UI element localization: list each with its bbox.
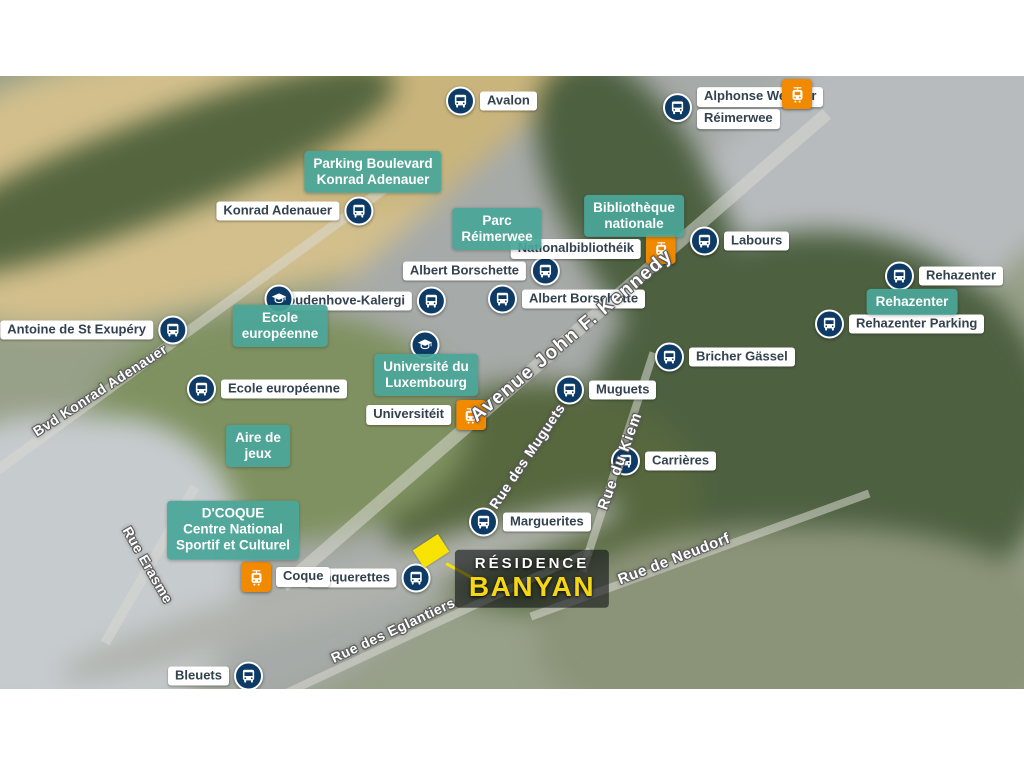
poi-label-line: Ecole [242,310,319,326]
bus-stop-muguets[interactable]: Muguets [555,376,656,405]
bus-stop-label: Rehazenter [919,266,1003,286]
bus-icon [344,197,373,226]
bus-stop-ecole-europeenne[interactable]: Ecole européenne [187,375,347,404]
bus-icon [234,662,263,690]
bus-stop-label: Antoine de St Exupéry [0,320,153,340]
poi-label-d-coque: D'COQUECentre NationalSportif et Culture… [167,501,299,560]
street-label-rue-des-eglantiers: Rue des Eglantiers [328,594,457,666]
street-label-bvd-konrad-adenauer: Bvd Konrad Adenauer [30,341,170,440]
map-canvas[interactable]: AvalonAlphonse WeickerRéimerweeKonrad Ad… [0,76,1024,689]
bus-stop-label: Marguerites [503,512,591,532]
bus-stop-label: Réimerwee [697,109,780,129]
poi-label-line: Réimerwee [461,229,532,245]
poi-label-line: Centre National [176,522,290,538]
poi-label-line: Bibliothèque [593,200,675,216]
bottom-margin [0,689,1024,768]
bus-stop-avalon[interactable]: Avalon [446,87,537,116]
poi-label-line: Université du [383,359,469,375]
bus-icon [655,343,684,372]
bus-icon [663,94,692,123]
bus-stop-label: Rehazenter Parking [849,314,984,334]
bus-stop-label: Konrad Adenauer [216,201,339,221]
bus-stop-label: Carrières [645,451,716,471]
tram-stop-stop[interactable] [782,79,812,109]
bus-stop-label: Bricher Gässel [689,347,795,367]
poi-label-line: Konrad Adenauer [313,172,432,188]
poi-label-universite-du: Université duLuxembourg [374,354,478,396]
bus-icon [402,564,431,593]
bus-stop-label: Muguets [589,380,656,400]
tram-icon [782,79,812,109]
bus-icon [690,227,719,256]
bus-stop-rehazenter[interactable]: Rehazenter [885,262,1003,291]
bus-stop-bricher-gassel[interactable]: Bricher Gässel [655,343,795,372]
bus-stop-label: Labours [724,231,789,251]
property-name-line2: BANYAN [469,572,595,601]
poi-label-bibliotheque: Bibliothèquenationale [584,195,684,237]
poi-label-line: Parking Boulevard [313,156,432,172]
property-name-label: RÉSIDENCEBANYAN [455,550,609,608]
poi-label-parking-boulevard: Parking BoulevardKonrad Adenauer [304,151,441,193]
listing-map-image: AvalonAlphonse WeickerRéimerweeKonrad Ad… [0,0,1024,768]
street-label-rue-de-neudorf: Rue de Neudorf [616,530,733,588]
poi-label-aire-de: Aire dejeux [226,425,290,467]
bus-stop-marguerites[interactable]: Marguerites [469,508,591,537]
tram-stop-label: Coque [276,567,330,587]
bus-icon [417,287,446,316]
tram-stop-label: Universitéit [366,405,451,425]
street-label-rue-des-muguets: Rue des Muguets [486,400,568,511]
property-name-line1: RÉSIDENCE [469,555,595,572]
bus-icon [815,310,844,339]
bus-stop-labours[interactable]: Labours [690,227,789,256]
top-margin [0,0,1024,76]
poi-label-line: Sportif et Culturel [176,538,290,554]
poi-label-rehazenter: Rehazenter [867,289,958,315]
tram-icon [241,562,271,592]
poi-label-line: Aire de [235,430,281,446]
bus-icon [187,375,216,404]
bus-icon [885,262,914,291]
bus-stop-label: Albert Borschette [403,261,526,281]
poi-label-line: jeux [235,446,281,462]
poi-label-ecole: Ecoleeuropéenne [233,305,328,347]
poi-label-parc: ParcRéimerwee [452,208,541,250]
bus-stop-antoine-de-st-exupery[interactable]: Antoine de St Exupéry [0,316,187,345]
bus-icon [555,376,584,405]
tram-stop-coque[interactable]: Coque [241,562,330,592]
poi-label-line: D'COQUE [176,506,290,522]
bus-stop-label: Avalon [480,91,537,111]
bus-icon [158,316,187,345]
markers-layer: AvalonAlphonse WeickerRéimerweeKonrad Ad… [0,76,1024,689]
bus-stop-bleuets[interactable]: Bleuets [168,662,263,690]
bus-stop-label: Ecole européenne [221,379,347,399]
tram-stop-universiteit[interactable]: Universitéit [366,400,486,430]
poi-label-line: Luxembourg [383,375,469,391]
bus-icon [488,285,517,314]
bus-stop-konrad-adenauer[interactable]: Konrad Adenauer [216,197,373,226]
poi-label-line: Parc [461,213,532,229]
poi-label-line: européenne [242,326,319,342]
poi-label-line: Rehazenter [876,294,949,310]
bus-stop-label: Bleuets [168,666,229,686]
poi-label-line: nationale [593,216,675,232]
bus-icon [469,508,498,537]
bus-icon [446,87,475,116]
